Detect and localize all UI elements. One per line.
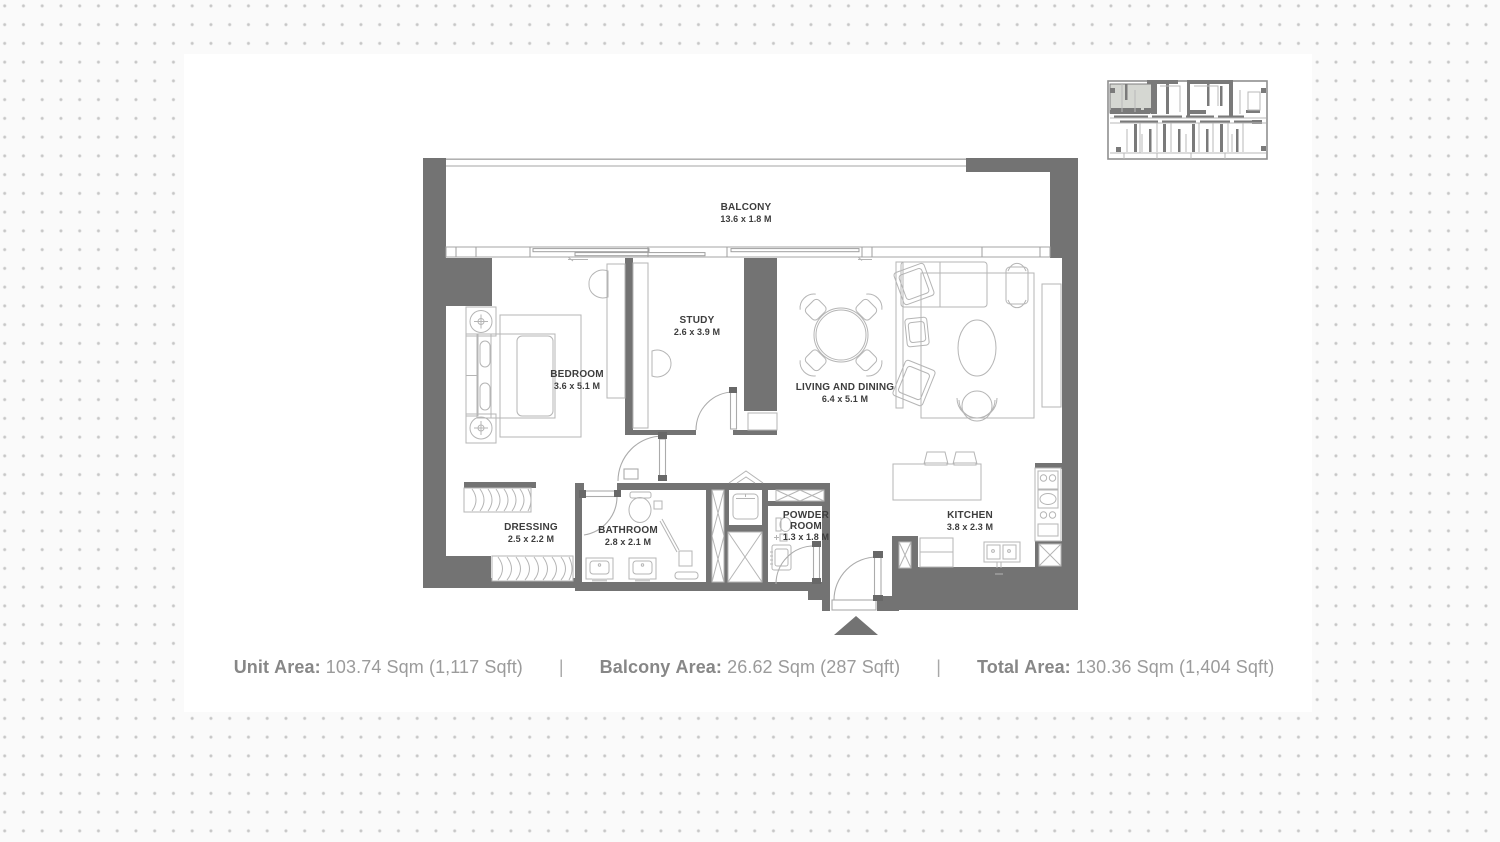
svg-text:1.3 x 1.8 M: 1.3 x 1.8 M [783, 532, 829, 542]
svg-text:2.5 x 2.2 M: 2.5 x 2.2 M [508, 534, 554, 544]
svg-text:POWDER: POWDER [783, 510, 830, 521]
svg-text:ROOM: ROOM [790, 521, 822, 532]
svg-text:BEDROOM: BEDROOM [550, 369, 604, 380]
svg-text:LIVING AND DINING: LIVING AND DINING [796, 382, 895, 393]
svg-text:6.4 x 5.1 M: 6.4 x 5.1 M [822, 394, 868, 404]
svg-text:3.6 x 5.1 M: 3.6 x 5.1 M [554, 381, 600, 391]
svg-text:3.8 x 2.3 M: 3.8 x 2.3 M [947, 522, 993, 532]
svg-text:STUDY: STUDY [680, 315, 715, 326]
svg-text:BATHROOM: BATHROOM [598, 525, 658, 536]
svg-text:BALCONY: BALCONY [721, 202, 772, 213]
svg-text:KITCHEN: KITCHEN [947, 510, 993, 521]
svg-text:DRESSING: DRESSING [504, 522, 558, 533]
svg-text:2.8 x 2.1 M: 2.8 x 2.1 M [605, 537, 651, 547]
svg-text:2.6 x 3.9 M: 2.6 x 3.9 M [674, 327, 720, 337]
svg-text:13.6 x 1.8 M: 13.6 x 1.8 M [720, 214, 771, 224]
